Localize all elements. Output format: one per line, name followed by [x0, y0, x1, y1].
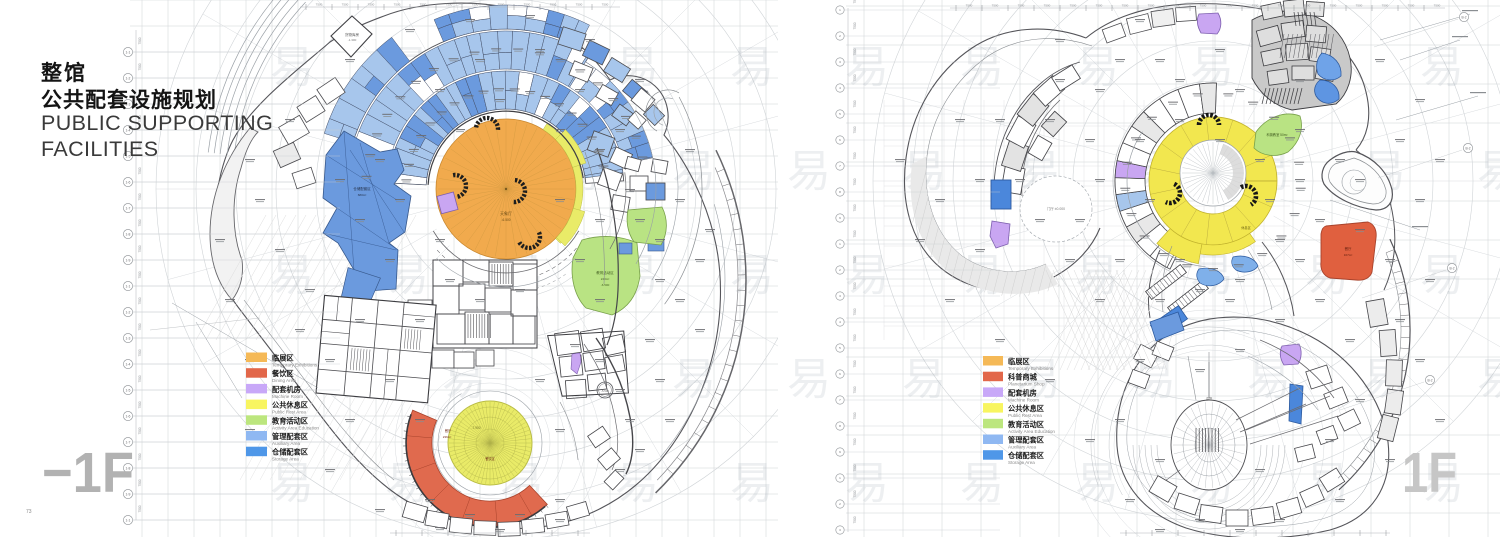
svg-text:1F: 1F	[1402, 441, 1457, 505]
svg-text:Dining Area: Dining Area	[272, 378, 296, 383]
svg-text:仓储配套区: 仓储配套区	[1007, 451, 1044, 460]
svg-text:餐饮区: 餐饮区	[485, 456, 495, 461]
svg-text:7500: 7500	[138, 375, 142, 382]
svg-text:7500: 7500	[138, 271, 142, 278]
svg-text:7500: 7500	[853, 100, 857, 107]
svg-text:-6.500: -6.500	[501, 218, 510, 222]
svg-text:7500: 7500	[138, 167, 142, 174]
svg-text:7500: 7500	[853, 22, 857, 29]
svg-text:7500: 7500	[1200, 4, 1207, 8]
svg-text:7500: 7500	[138, 63, 142, 70]
svg-text:临展区: 临展区	[1008, 357, 1030, 366]
svg-text:7500: 7500	[472, 3, 479, 7]
svg-text:7500: 7500	[342, 3, 349, 7]
svg-text:7500: 7500	[1408, 4, 1415, 8]
svg-text:教育活动区: 教育活动区	[271, 416, 308, 425]
svg-text:PUBLIC SUPPORTING: PUBLIC SUPPORTING	[41, 111, 273, 135]
svg-text:7500: 7500	[1382, 4, 1389, 8]
svg-text:整馆: 整馆	[41, 61, 87, 85]
svg-text:7500: 7500	[138, 245, 142, 252]
svg-text:1-8: 1-8	[126, 232, 131, 236]
svg-text:配套机房: 配套机房	[272, 385, 301, 394]
svg-text:-1.300: -1.300	[348, 38, 357, 42]
svg-text:1-1: 1-1	[126, 518, 131, 522]
svg-text:7500: 7500	[853, 230, 857, 237]
svg-text:货物库房: 货物库房	[345, 32, 359, 37]
svg-text:天象厅: 天象厅	[500, 210, 512, 216]
svg-text:7500: 7500	[138, 37, 142, 44]
svg-text:7500: 7500	[394, 3, 401, 7]
svg-text:易: 易	[730, 43, 774, 92]
svg-text:Activity Area Education: Activity Area Education	[1008, 429, 1055, 434]
svg-text:7500: 7500	[853, 256, 857, 263]
svg-text:7500: 7500	[602, 3, 609, 7]
svg-text:167m²: 167m²	[1344, 253, 1353, 257]
svg-text:易: 易	[1075, 43, 1119, 92]
svg-text:7500: 7500	[853, 308, 857, 315]
svg-text:7500: 7500	[138, 453, 142, 460]
svg-text:-6.500: -6.500	[601, 283, 610, 287]
svg-text:易: 易	[845, 43, 889, 92]
svg-text:7500: 7500	[1252, 4, 1259, 8]
svg-text:教育活动区: 教育活动区	[596, 270, 614, 275]
svg-text:临展区: 临展区	[272, 354, 294, 363]
svg-text:7500: 7500	[853, 126, 857, 133]
svg-text:易: 易	[845, 251, 889, 300]
svg-text:餐厅: 餐厅	[1345, 246, 1352, 251]
svg-text:管理配套区: 管理配套区	[1008, 436, 1044, 445]
svg-text:1-4: 1-4	[126, 362, 131, 366]
svg-text:易: 易	[1420, 43, 1464, 92]
svg-text:1-6: 1-6	[126, 414, 131, 418]
svg-text:Auxiliary Area: Auxiliary Area	[272, 441, 301, 446]
svg-text:Temporary Exhibitions: Temporary Exhibitions	[272, 363, 318, 368]
svg-text:B-2: B-2	[1462, 15, 1467, 19]
svg-text:1-1: 1-1	[126, 50, 131, 54]
svg-text:7500: 7500	[992, 4, 999, 8]
svg-text:7500: 7500	[138, 193, 142, 200]
svg-text:−1F: −1F	[42, 441, 134, 505]
svg-text:教育活动区: 教育活动区	[1007, 420, 1044, 429]
svg-text:680m²: 680m²	[358, 193, 367, 197]
svg-text:Storage Area: Storage Area	[1008, 460, 1035, 465]
svg-text:7500: 7500	[853, 282, 857, 289]
svg-text:7500: 7500	[138, 297, 142, 304]
svg-text:7500: 7500	[138, 349, 142, 356]
svg-text:7500: 7500	[138, 479, 142, 486]
svg-text:易: 易	[787, 147, 831, 196]
svg-text:易: 易	[1075, 251, 1119, 300]
svg-text:7500: 7500	[853, 48, 857, 55]
svg-text:易: 易	[1477, 355, 1500, 404]
svg-text:7500: 7500	[853, 334, 857, 341]
svg-text:B-2: B-2	[1428, 378, 1433, 382]
svg-text:易: 易	[1075, 459, 1119, 508]
svg-text:Activity Area Education: Activity Area Education	[272, 425, 319, 430]
svg-text:中庭: 中庭	[1206, 396, 1213, 401]
svg-text:休息区: 休息区	[1241, 225, 1251, 230]
svg-text:1-3: 1-3	[126, 336, 131, 340]
svg-text:Machine Room: Machine Room	[1008, 397, 1039, 402]
svg-text:7500: 7500	[853, 178, 857, 185]
svg-text:7500: 7500	[1018, 4, 1025, 8]
svg-text:7500: 7500	[853, 360, 857, 367]
svg-text:7500: 7500	[368, 3, 375, 7]
svg-text:7500: 7500	[576, 3, 583, 7]
svg-text:1-7: 1-7	[126, 206, 131, 210]
svg-text:7500: 7500	[138, 323, 142, 330]
svg-text:Temporary Exhibitions: Temporary Exhibitions	[1008, 366, 1054, 371]
svg-text:公共休息区: 公共休息区	[1008, 404, 1044, 413]
svg-text:7500: 7500	[853, 74, 857, 81]
svg-text:科普教室 50m²: 科普教室 50m²	[1267, 132, 1288, 137]
svg-text:Public Rest Area: Public Rest Area	[272, 410, 306, 415]
svg-text:7500: 7500	[853, 464, 857, 471]
svg-text:7500: 7500	[316, 3, 323, 7]
svg-text:7500: 7500	[138, 219, 142, 226]
svg-text:Machine Room: Machine Room	[272, 394, 303, 399]
svg-text:7500: 7500	[853, 438, 857, 445]
svg-text:7500: 7500	[1356, 4, 1363, 8]
svg-text:FACILITIES: FACILITIES	[41, 137, 159, 161]
svg-text:1-1: 1-1	[126, 284, 131, 288]
svg-text:易: 易	[270, 43, 314, 92]
svg-text:7500: 7500	[550, 3, 557, 7]
svg-text:管理配套区: 管理配套区	[272, 432, 308, 441]
svg-text:7500: 7500	[853, 412, 857, 419]
svg-text:1-9: 1-9	[126, 258, 131, 262]
svg-text:配套机房: 配套机房	[1008, 388, 1037, 397]
svg-text:餐厅: 餐厅	[445, 428, 452, 433]
svg-text:易: 易	[730, 251, 774, 300]
svg-text:B-2: B-2	[1450, 266, 1455, 270]
svg-text:7500: 7500	[1278, 4, 1285, 8]
svg-text:7500: 7500	[138, 427, 142, 434]
svg-text:1-2: 1-2	[126, 76, 131, 80]
svg-text:1-6: 1-6	[126, 180, 131, 184]
svg-text:公共休息区: 公共休息区	[272, 401, 308, 410]
svg-text:7500: 7500	[1148, 4, 1155, 8]
svg-text:易: 易	[787, 355, 831, 404]
svg-text:7500: 7500	[1434, 4, 1441, 8]
svg-text:7500: 7500	[1174, 4, 1181, 8]
svg-text:7500: 7500	[853, 386, 857, 393]
svg-text:7500: 7500	[1096, 4, 1103, 8]
svg-text:Storage Area: Storage Area	[272, 457, 299, 462]
svg-text:7500: 7500	[138, 401, 142, 408]
svg-text:1-5: 1-5	[126, 388, 131, 392]
svg-text:7500: 7500	[1226, 4, 1233, 8]
svg-text:7500: 7500	[1122, 4, 1129, 8]
svg-text:公共配套设施规划: 公共配套设施规划	[41, 88, 217, 112]
svg-text:7500: 7500	[446, 3, 453, 7]
svg-text:7500: 7500	[1044, 4, 1051, 8]
svg-text:7500: 7500	[1330, 4, 1337, 8]
svg-text:Auxiliary Area: Auxiliary Area	[1008, 445, 1037, 450]
svg-text:7500: 7500	[853, 490, 857, 497]
svg-text:易: 易	[960, 459, 1004, 508]
svg-text:-7.900: -7.900	[471, 426, 480, 430]
svg-text:Planetarium Shop: Planetarium Shop	[1008, 382, 1045, 387]
svg-text:易: 易	[730, 459, 774, 508]
svg-text:240m²: 240m²	[601, 277, 610, 281]
svg-text:7500: 7500	[1070, 4, 1077, 8]
svg-text:7500: 7500	[420, 3, 427, 7]
svg-text:7500: 7500	[1304, 4, 1311, 8]
svg-text:7500: 7500	[524, 3, 531, 7]
svg-text:门厅 ±0.000: 门厅 ±0.000	[1047, 206, 1065, 211]
svg-text:7500: 7500	[853, 152, 857, 159]
svg-text:7500: 7500	[138, 505, 142, 512]
svg-text:B-2: B-2	[1466, 146, 1471, 150]
svg-text:236m²: 236m²	[443, 435, 452, 439]
svg-text:易: 易	[902, 355, 946, 404]
svg-text:7500: 7500	[853, 0, 857, 4]
svg-text:7500: 7500	[966, 4, 973, 8]
svg-text:7500: 7500	[498, 3, 505, 7]
svg-text:73: 73	[26, 509, 32, 515]
svg-text:7500: 7500	[853, 516, 857, 523]
svg-text:仓储配套区: 仓储配套区	[353, 186, 371, 191]
svg-text:易: 易	[672, 355, 716, 404]
svg-text:仓储配套区: 仓储配套区	[271, 448, 308, 457]
svg-text:餐饮区: 餐饮区	[271, 369, 294, 378]
svg-text:科普商城: 科普商城	[1008, 373, 1038, 382]
svg-text:7500: 7500	[853, 204, 857, 211]
svg-text:易: 易	[1477, 147, 1500, 196]
svg-text:1-2: 1-2	[126, 310, 131, 314]
svg-text:易: 易	[1420, 251, 1464, 300]
svg-text:Public Rest Area: Public Rest Area	[1008, 413, 1042, 418]
svg-text:易: 易	[845, 459, 889, 508]
